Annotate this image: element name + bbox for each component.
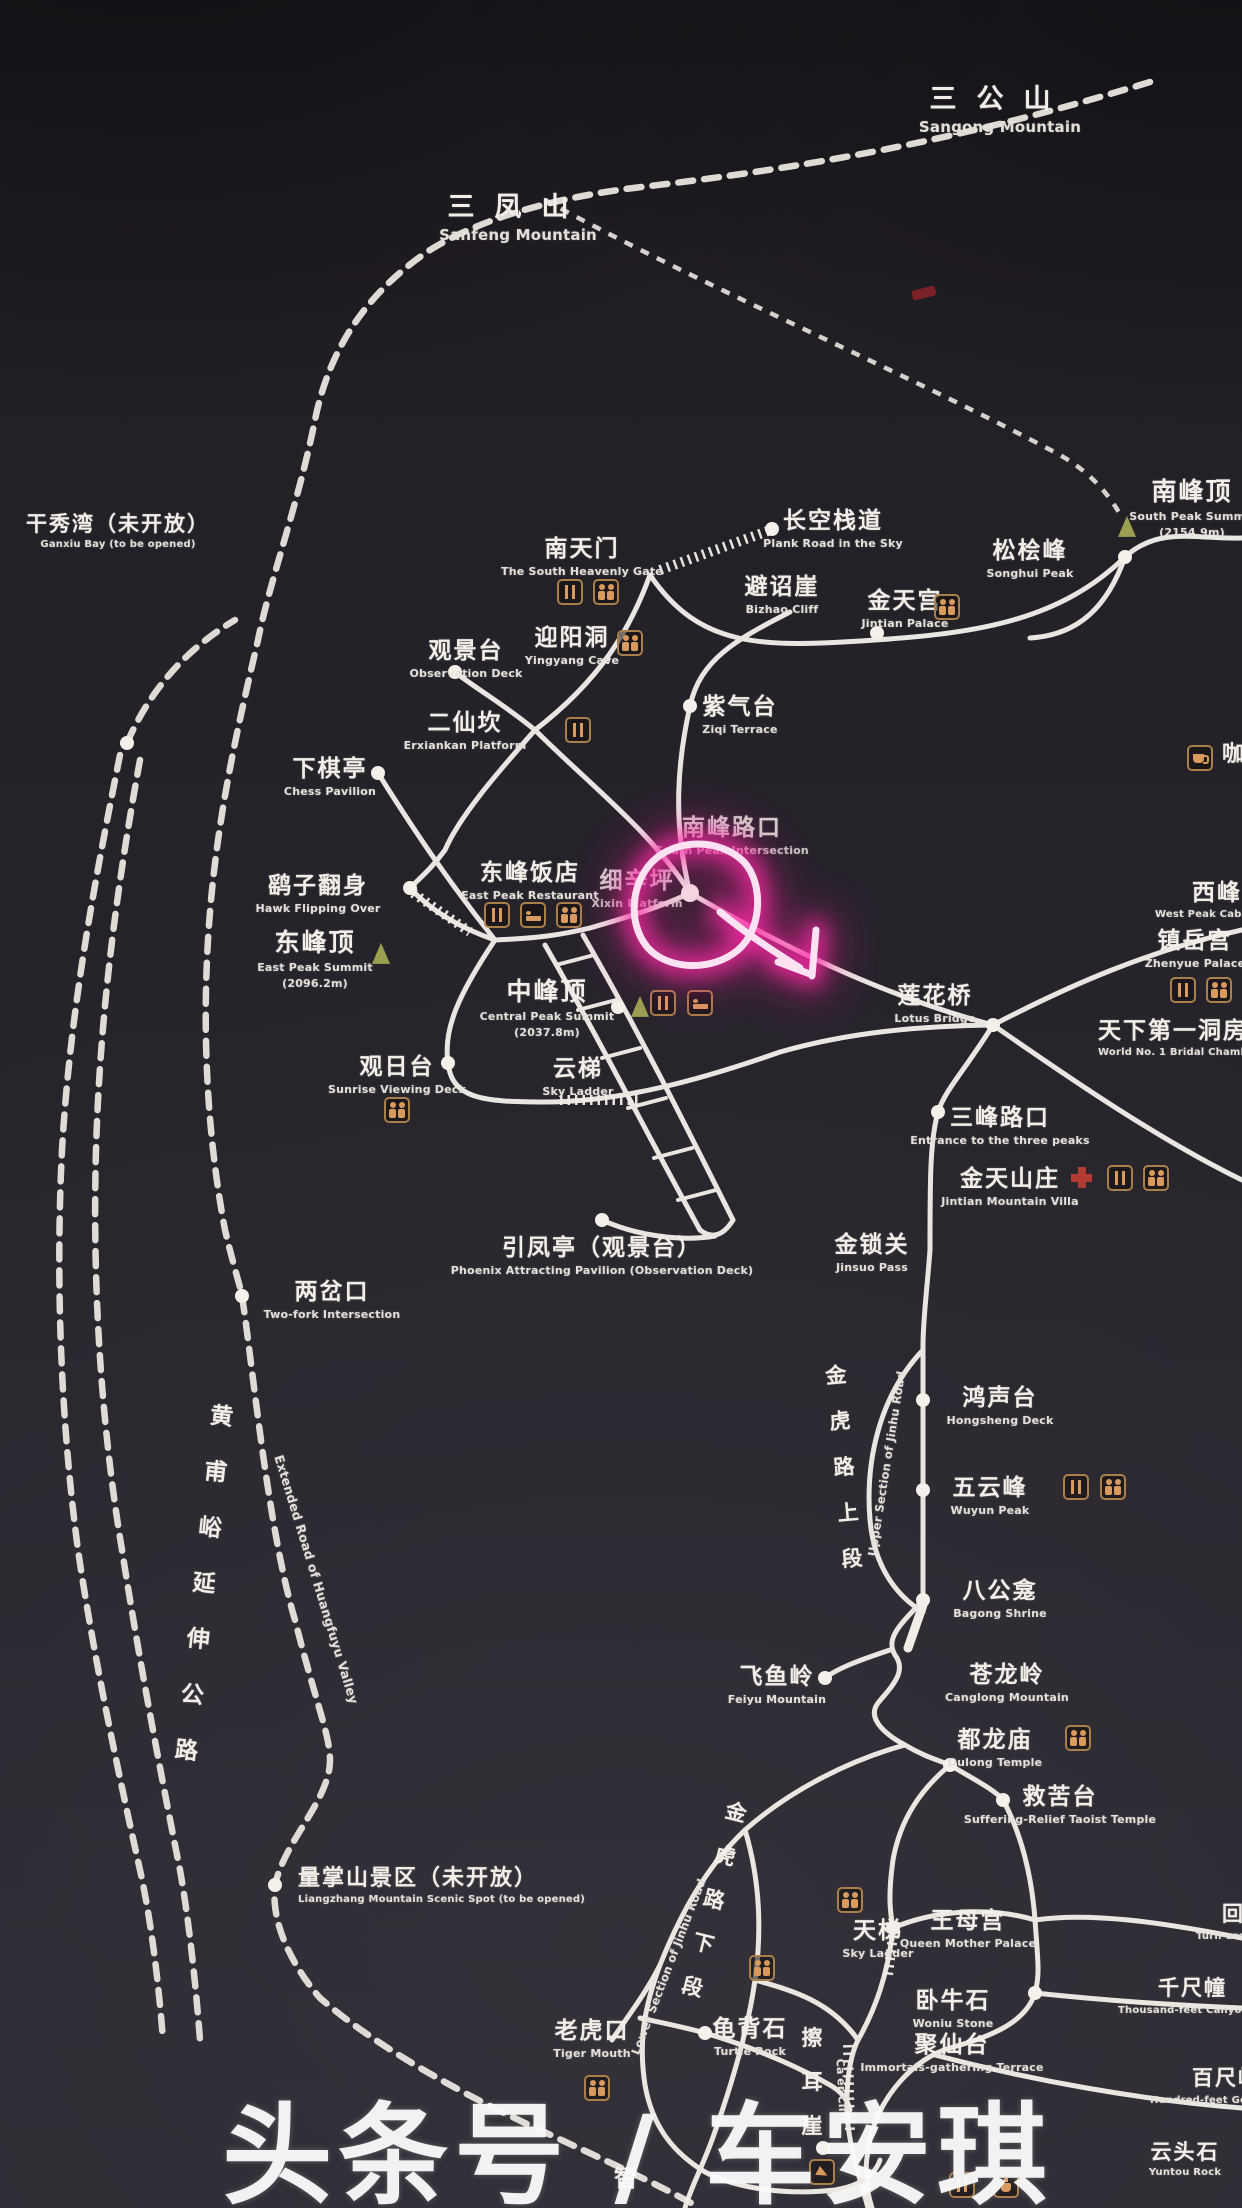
huashan-trail-map-sign: 三公山Sangong Mountain三凤山Sanfeng Mountain干秀…	[0, 0, 1242, 2208]
watermark-text: 头条号 / 车安琪	[222, 2066, 1053, 2208]
pink-highlight-annotation	[0, 0, 1242, 2208]
